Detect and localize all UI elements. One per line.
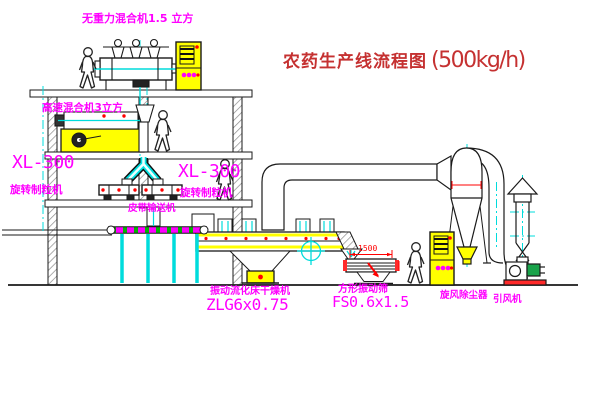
label-top-mixer: 无重力混合机1.5 立方 bbox=[82, 13, 193, 25]
label-dryer-model: ZLG6x0.75 bbox=[206, 297, 288, 314]
rotary-granulator-left bbox=[99, 179, 139, 200]
diagram-title: 农药生产线流程图 (500kg/h) bbox=[283, 47, 525, 73]
belt-conveyor bbox=[107, 226, 208, 283]
screen-dimension-text: 1500 bbox=[358, 244, 377, 253]
diagram-title-capacity: (500kg/h) bbox=[431, 48, 525, 73]
label-belt-conveyor: 皮带输送机 bbox=[128, 204, 176, 214]
label-cyclone: 旋风除尘器 bbox=[440, 291, 488, 301]
control-cabinet-top bbox=[176, 42, 201, 90]
flow-diagram-canvas: 农药生产线流程图 (500kg/h) 无重力混合机1.5 立方 高速混合机3立方… bbox=[0, 0, 600, 403]
label-granulator-left-name: 旋转制粒机 bbox=[10, 185, 63, 196]
control-cabinet-cyclone bbox=[430, 232, 454, 285]
induced-draft-fan bbox=[504, 262, 546, 285]
label-mid-mixer: 高速混合机3立方 bbox=[42, 103, 123, 114]
label-screen-model: FS0.6x1.5 bbox=[332, 295, 409, 311]
label-granulator-left-model: XL-300 bbox=[12, 154, 74, 173]
label-fan: 引风机 bbox=[493, 295, 522, 305]
label-granulator-right-model: XL-300 bbox=[178, 163, 240, 182]
dryer-exhaust-duct bbox=[262, 156, 451, 230]
label-granulator-right-name: 旋转制粒机 bbox=[180, 188, 233, 199]
diagram-title-text: 农药生产线流程图 bbox=[283, 47, 427, 72]
